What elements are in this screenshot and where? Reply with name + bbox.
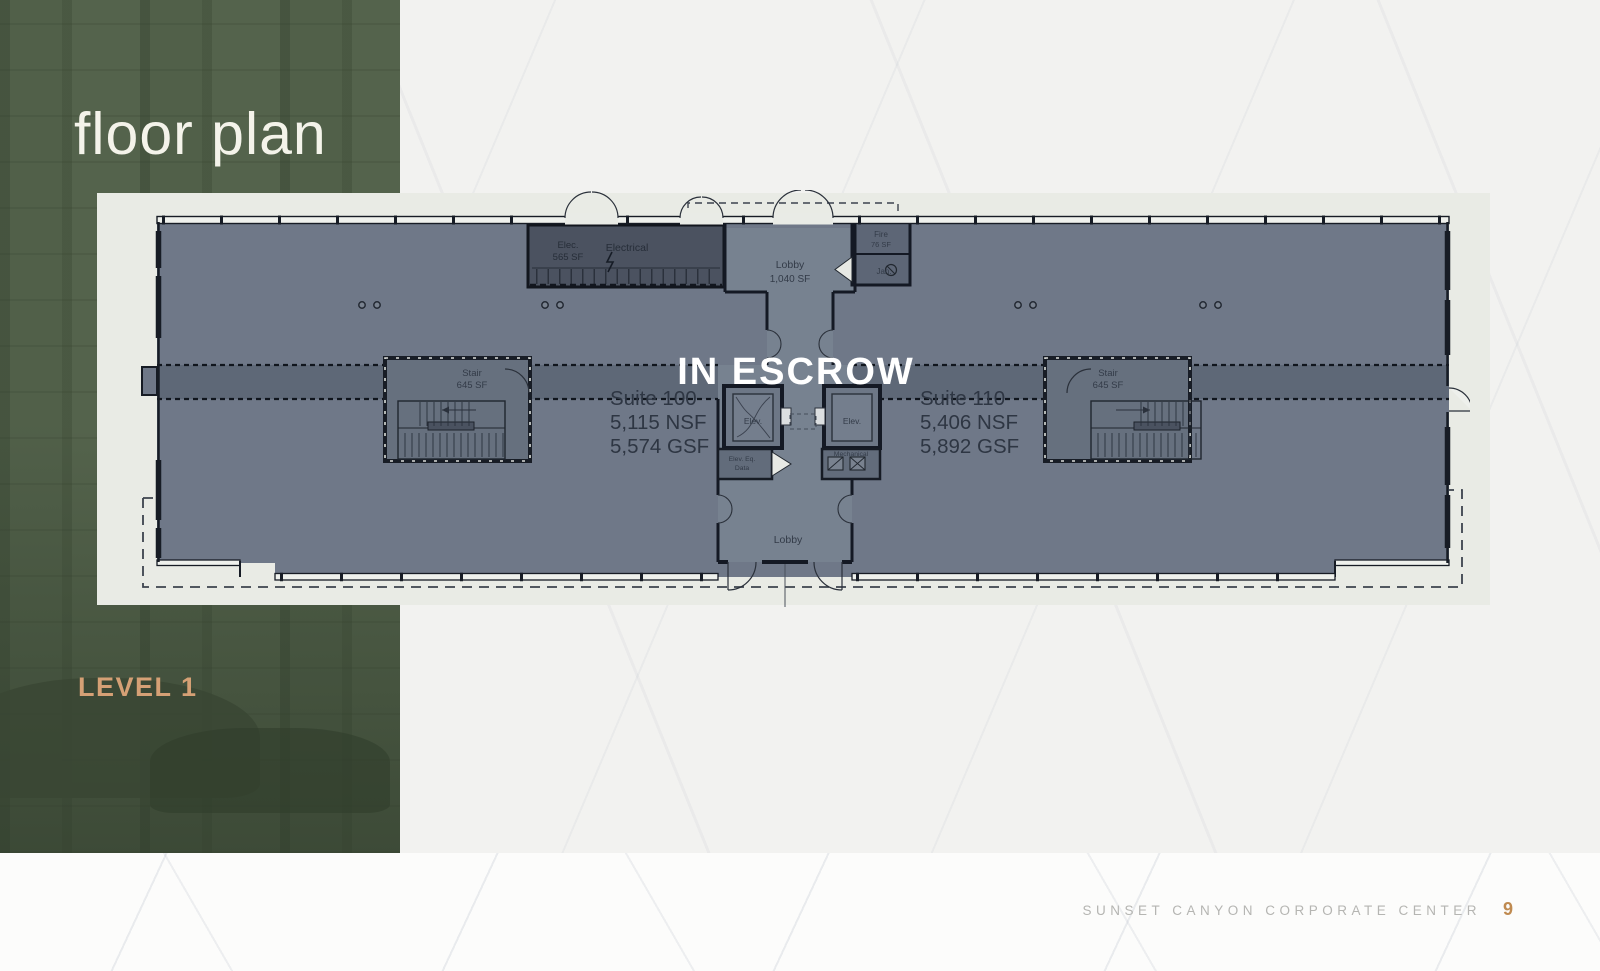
footer: SUNSET CANYON CORPORATE CENTER 9 bbox=[1082, 899, 1514, 920]
fire-label: Fire bbox=[874, 230, 888, 239]
suite-right-name: Suite 110 bbox=[920, 387, 1005, 410]
electrical-abbr-label: Elec. bbox=[557, 240, 578, 251]
fire-area-label: 76 SF bbox=[871, 240, 891, 249]
suite-left-nsf: 5,115 NSF bbox=[610, 411, 706, 434]
elevator-right-label: Elev. bbox=[843, 416, 861, 426]
suite-right-gsf: 5,892 GSF bbox=[920, 435, 1019, 458]
floor-plan-drawing: Stair 645 SF Stair 645 SF Elec. 565 SF E… bbox=[140, 190, 1470, 610]
lobby-upper-label: Lobby bbox=[776, 259, 805, 271]
elevator-left-label: Elev. bbox=[744, 416, 762, 426]
right-exit-door bbox=[1449, 388, 1470, 411]
mechanical-label: Mechanical bbox=[834, 451, 869, 458]
stair-right-label: Stair bbox=[1098, 368, 1118, 379]
page-number: 9 bbox=[1503, 899, 1514, 920]
stair-left-label: Stair bbox=[462, 368, 482, 379]
car-silhouette-2 bbox=[150, 728, 390, 813]
electrical-name-label: Electrical bbox=[606, 242, 649, 254]
stair-left bbox=[385, 358, 530, 461]
janitor-label: Jan. bbox=[876, 267, 891, 276]
top-exterior-wall bbox=[157, 213, 1449, 225]
stair-right bbox=[1045, 358, 1201, 461]
lobby-lower-label: Lobby bbox=[774, 534, 803, 546]
page-title: floor plan bbox=[74, 100, 327, 168]
stair-left-area: 645 SF bbox=[457, 380, 488, 391]
elev-equip-label-2: Data bbox=[735, 465, 750, 472]
suite-right-nsf: 5,406 NSF bbox=[920, 411, 1018, 434]
stair-right-area: 645 SF bbox=[1093, 380, 1124, 391]
building-name: SUNSET CANYON CORPORATE CENTER bbox=[1082, 903, 1481, 918]
suite-left-gsf: 5,574 GSF bbox=[610, 435, 709, 458]
electrical-area-label: 565 SF bbox=[553, 252, 584, 263]
lobby-upper-area: 1,040 SF bbox=[770, 274, 811, 285]
escrow-status-overlay: IN ESCROW bbox=[677, 351, 915, 393]
elev-equip-label-1: Elev. Eq. bbox=[729, 456, 756, 463]
level-label: LEVEL 1 bbox=[78, 672, 198, 703]
slide-page: { "slide": { "title": "floor plan", "lev… bbox=[0, 0, 1600, 971]
